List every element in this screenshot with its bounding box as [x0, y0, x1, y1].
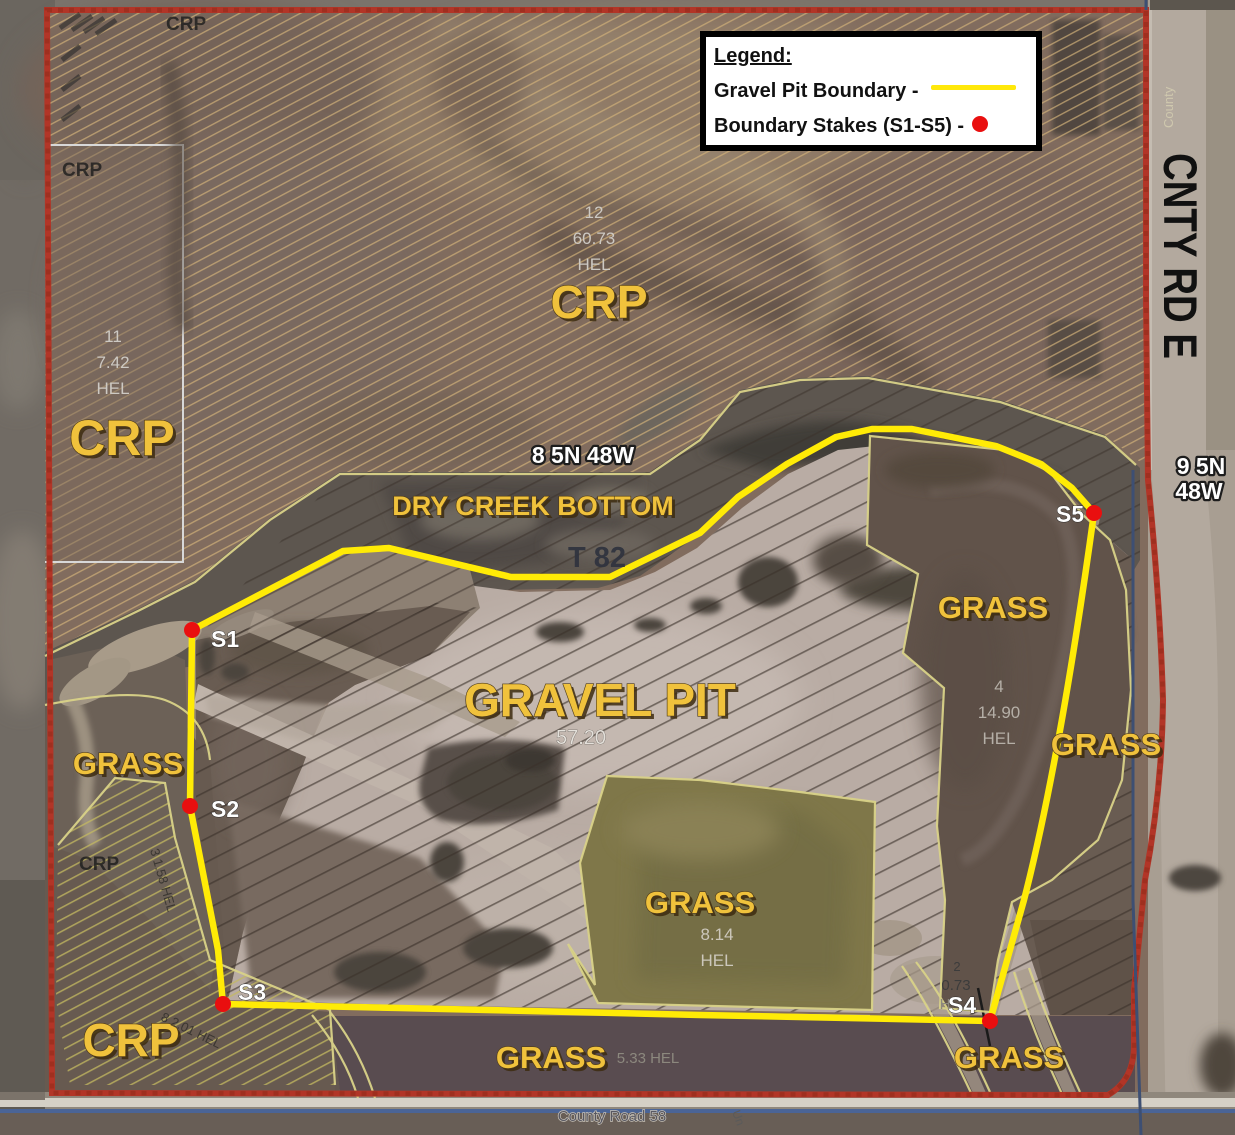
svg-text:57.20: 57.20 — [556, 727, 606, 749]
svg-text:S3: S3 — [238, 979, 266, 1005]
svg-text:CRP: CRP — [62, 160, 102, 181]
svg-text:GRASS: GRASS — [1051, 727, 1161, 762]
svg-text:County Road 58: County Road 58 — [558, 1108, 666, 1125]
svg-text:HEL: HEL — [982, 729, 1015, 748]
svg-text:0.73: 0.73 — [941, 977, 970, 994]
svg-text:County: County — [1161, 86, 1176, 128]
svg-text:S2: S2 — [211, 796, 239, 822]
svg-text:HEL: HEL — [700, 951, 733, 970]
svg-text:GRASS: GRASS — [645, 885, 755, 920]
svg-text:11: 11 — [104, 327, 122, 346]
svg-text:Legend:: Legend: — [714, 45, 792, 67]
svg-text:GRASS: GRASS — [73, 746, 183, 781]
svg-text:5.33 HEL: 5.33 HEL — [617, 1050, 680, 1067]
svg-text:CRP: CRP — [550, 276, 647, 328]
svg-text:S4: S4 — [948, 992, 976, 1018]
svg-text:CRP: CRP — [79, 854, 119, 875]
svg-text:HEL: HEL — [96, 379, 129, 398]
svg-text:DRY CREEK BOTTOM: DRY CREEK BOTTOM — [392, 491, 674, 521]
svg-text:T 82: T 82 — [568, 542, 626, 574]
svg-text:CNTY RD E: CNTY RD E — [1154, 153, 1207, 359]
svg-text:GRASS: GRASS — [496, 1040, 606, 1075]
svg-text:2: 2 — [953, 959, 960, 974]
svg-text:60.73: 60.73 — [573, 229, 616, 248]
svg-text:7.42: 7.42 — [96, 353, 129, 372]
svg-text:8 5N 48W: 8 5N 48W — [532, 442, 635, 468]
svg-text:GRASS: GRASS — [954, 1040, 1064, 1075]
svg-text:9 5N: 9 5N — [1177, 453, 1226, 479]
svg-text:8.14: 8.14 — [700, 925, 733, 944]
svg-text:14.90: 14.90 — [978, 703, 1021, 722]
svg-text:CRP: CRP — [69, 410, 175, 466]
svg-text:CRP: CRP — [166, 14, 206, 35]
svg-text:S1: S1 — [211, 626, 239, 652]
svg-text:4: 4 — [994, 677, 1003, 696]
svg-text:12: 12 — [585, 203, 604, 222]
svg-text:H: H — [940, 996, 951, 1013]
svg-text:GRASS: GRASS — [938, 590, 1048, 625]
svg-text:GRAVEL PIT: GRAVEL PIT — [464, 674, 736, 726]
svg-text:S5: S5 — [1056, 501, 1084, 527]
svg-text:HEL: HEL — [577, 255, 610, 274]
svg-text:48W: 48W — [1175, 478, 1223, 504]
svg-text:Boundary Stakes (S1-S5) -: Boundary Stakes (S1-S5) - — [714, 115, 964, 137]
svg-text:Gravel Pit Boundary -: Gravel Pit Boundary - — [714, 80, 919, 102]
